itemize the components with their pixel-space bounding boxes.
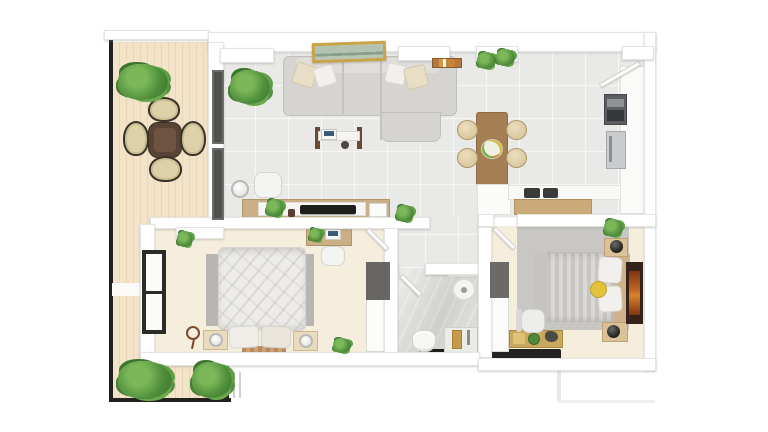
cooktop-cabinet-wood [514, 199, 592, 215]
bed2-plant [604, 219, 623, 237]
kitchen-plant-1 [477, 52, 496, 69]
lamp1-left [209, 333, 223, 347]
bath-sink-drain [461, 287, 467, 293]
sofa-divider-2 [380, 60, 382, 140]
balcony-chair-south [149, 156, 182, 182]
balcony-door-frame-lower [212, 148, 224, 220]
burner-left [524, 188, 540, 198]
wall-kitchen-south-right [517, 214, 656, 227]
bench-bottles [513, 333, 525, 344]
wall-kitchen-south-left [478, 214, 494, 227]
console-laptop [321, 129, 337, 140]
bed2-yellow-pillow [590, 281, 607, 298]
wall-bed2-south [478, 358, 656, 371]
balcony-plant [118, 64, 168, 100]
bed2-chair [521, 309, 545, 333]
artwork [312, 41, 387, 64]
toilet [412, 330, 436, 352]
coffee-cup [288, 209, 295, 217]
bed2-lamp-bottom [607, 325, 620, 338]
floor-lamp [231, 180, 249, 198]
hall-plant [396, 205, 414, 222]
balcony-bush-right [192, 362, 232, 398]
sideboard-plant [266, 199, 284, 217]
sofa-chaise [381, 112, 441, 142]
burner-right [543, 188, 558, 198]
bench-dryer [545, 331, 558, 342]
wall-right [644, 32, 656, 370]
shower-stem [467, 330, 470, 345]
bed1-duvet [218, 247, 306, 331]
bed2-wardrobe-left-top [490, 262, 509, 298]
balcony-door-frame-upper [212, 70, 224, 144]
balcony-table-top [154, 128, 176, 152]
oven-band [607, 99, 624, 107]
sideboard-boxes [369, 203, 387, 217]
bed1-floor-plant [333, 338, 351, 353]
floor-plan [0, 0, 768, 432]
oven-window [607, 110, 624, 121]
window-sill-entry [622, 46, 654, 60]
balcony-glass-line-2 [239, 372, 241, 398]
dining-chair-3 [506, 120, 527, 140]
terrace-step-horizontal [557, 400, 655, 403]
balcony-chair-west [123, 121, 149, 156]
bed1-wardrobe-top [366, 262, 390, 300]
wall-south-left [140, 352, 480, 366]
bed2-lamp-top [610, 240, 623, 253]
wall-top-balcony [104, 30, 210, 40]
wall-shelf-books [432, 58, 462, 68]
kitchen-plant-2 [496, 49, 515, 66]
balcony-railing-left [109, 40, 113, 402]
bed1-desk-chair [321, 246, 345, 266]
balcony-railing-bottom [109, 398, 231, 402]
balcony-glass-line-1 [233, 372, 235, 398]
bed1-pillow-right [260, 325, 291, 349]
bed1-pillow-left [228, 325, 259, 349]
dining-chair-2 [457, 148, 478, 168]
balcony-chair-east [180, 121, 206, 156]
bedroom1-window [142, 250, 166, 334]
dining-chair-1 [457, 120, 478, 140]
bed2-pillow-top [597, 256, 623, 284]
tv [300, 205, 356, 214]
terrace-step-vertical [557, 369, 561, 402]
wall-bathroom-north-right [425, 263, 480, 275]
dining-chair-4 [506, 148, 527, 168]
window-sill-left [220, 48, 274, 63]
sofa-divider-1 [342, 60, 344, 114]
balcony-chair-north [148, 97, 180, 122]
lamp1-right [299, 334, 313, 348]
desk-chair-living [254, 172, 282, 198]
living-corner-plant [230, 70, 270, 104]
bed1-desk-plant [309, 228, 323, 242]
shower-caddy [452, 330, 462, 349]
bench-jar [528, 333, 540, 345]
balcony-bush-left [118, 361, 172, 399]
fridge-handle [609, 136, 612, 162]
kitchen-cabinet-white [477, 184, 511, 215]
bed1-shelf-plant [177, 231, 193, 247]
fruit-bowl [481, 139, 503, 159]
bed2-wardrobe-glow [629, 271, 640, 315]
bed1-desk-laptop [325, 229, 341, 240]
console-stool [341, 141, 349, 149]
